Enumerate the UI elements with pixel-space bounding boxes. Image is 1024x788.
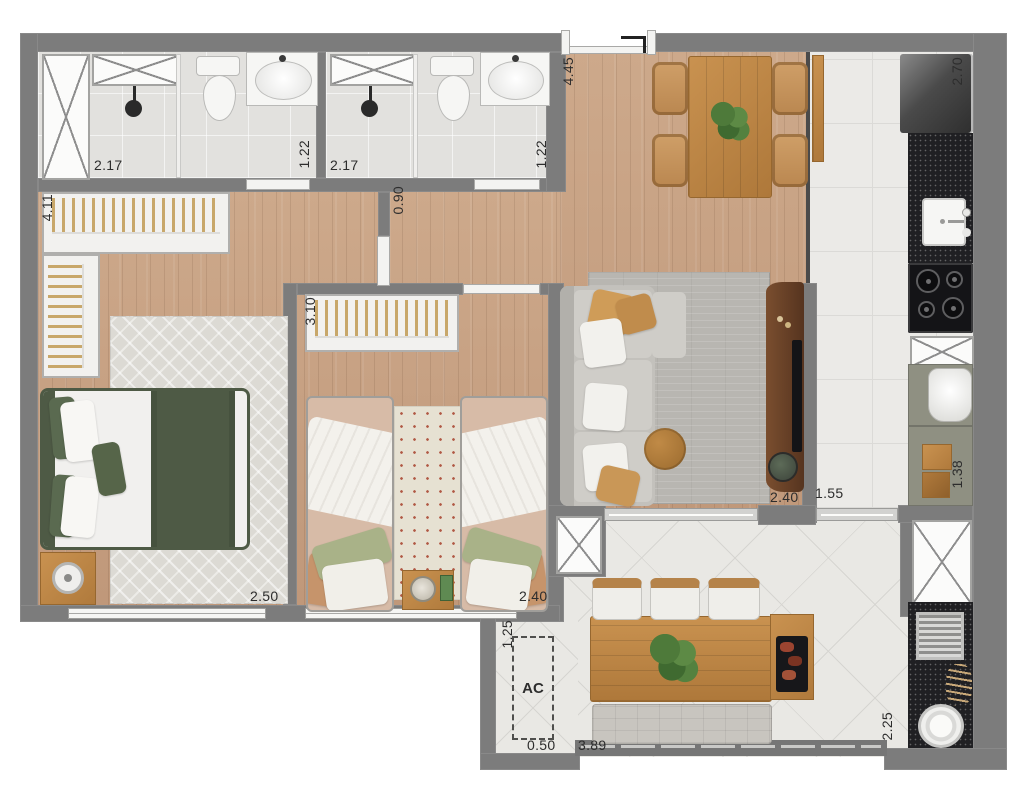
bathroom1-door-leaf [246,179,310,190]
pillow [321,558,389,612]
planter-icon [768,452,798,482]
pillow [60,475,100,538]
wall-ac-bottom [480,753,580,770]
toilet-tank-icon [430,56,474,76]
living-sliding-door [604,508,758,521]
bed-throw [151,388,235,550]
single-bed-left [306,396,394,612]
balcony-chair [650,578,700,620]
dining-chair [772,62,808,115]
wall-balcony-top-mid [758,505,816,525]
dim-kitchen-door: 1.55 [815,486,843,500]
dim-kitchen-cabinet: 1.38 [950,460,964,488]
closet-shaft-icon [42,54,90,180]
dim-bath2-depth: 1.22 [534,140,548,168]
bathroom2-door-leaf [474,179,540,190]
lamp-center-dot [64,574,72,582]
faucet-icon [948,220,964,223]
sink-basin-icon [488,61,544,100]
grill-grate-icon [916,612,964,660]
meat-icon [780,642,794,652]
sofa [560,286,686,508]
storage-box [922,472,950,498]
sofa-back [560,286,574,506]
entry-door-jamb-right [647,30,656,55]
dim-ac-width: 0.50 [527,738,555,752]
floor-plan: AC 4.11 2.17 1.22 2.17 1.22 0.90 4.45 2.… [0,0,1024,788]
dim-master-closet: 4.11 [40,194,54,221]
single-bed-right [460,396,548,612]
burner-icon [918,301,935,318]
wall-top-right [654,33,1007,52]
bowl-icon [410,576,436,602]
shower-head-icon [125,100,142,117]
hanging-herbs-icon [946,664,972,706]
dining-chair [772,134,808,187]
dim-balcony-depth: 2.25 [880,712,894,740]
dim-balcony-width: 3.89 [578,738,606,752]
dim-hall-width: 0.90 [391,186,405,214]
pillow [579,317,627,368]
round-burner-icon [918,704,964,748]
storage-box [922,444,952,470]
master-wardrobe-side [42,254,100,378]
bathroom1-window-icon [92,54,180,86]
faucet-icon [279,55,286,62]
burner-icon [916,269,940,293]
bedroom2-wardrobe [305,294,459,352]
sideboard [812,55,824,162]
sofa-chaise [652,292,686,358]
shower-head-icon [361,100,378,117]
candles-icon [777,316,783,322]
service-shaft-icon [912,520,972,604]
wall-hall [378,192,390,236]
bathroom1-partition [176,54,181,178]
dim-bath2-width: 2.17 [330,158,358,172]
bathroom2-window-icon [330,54,418,86]
dining-chair [652,134,688,187]
entry-door-handle-icon [621,36,646,53]
folded-blanket [306,416,394,529]
balcony-bench [592,704,772,744]
ac-unit-area: AC [512,636,554,740]
wall-ac-left [480,605,496,770]
dim-ac-depth: 1.25 [500,620,514,648]
dim-bed2-width: 2.40 [519,589,547,603]
book-icon [440,575,453,601]
wall-left [20,33,38,622]
laundry-basin-icon [928,368,972,422]
toilet-tank-icon [196,56,240,76]
dim-bath1-width: 2.17 [94,158,122,172]
sink-basin-icon [255,61,312,100]
kitchen-sliding-door [816,508,898,521]
plant-icon [650,634,700,684]
balcony-chair [708,578,760,620]
hangers-icon [48,264,84,368]
bedroom2-door-leaf [463,284,540,294]
dim-master-width: 2.50 [250,589,278,603]
dim-bed2-closet: 3.10 [303,297,317,325]
coffee-table-icon [644,428,686,470]
balcony-shaft-icon [556,516,602,574]
bathroom2-partition [413,54,418,178]
wall-top-left [20,33,566,52]
master-bed [40,388,250,550]
faucet-icon [512,55,519,62]
folded-blanket [460,416,548,529]
dim-bath1-depth: 1.22 [297,140,311,168]
sink-drain-dot [940,219,945,224]
ac-label: AC [522,680,544,697]
hangers-icon [52,198,220,234]
tv-icon [792,340,802,452]
master-wardrobe-top [42,192,230,254]
dining-chair [652,62,688,115]
balcony-chair [592,578,642,620]
faucet-handle-dot [962,208,971,217]
wall-right [973,33,1007,770]
dim-living-door: 2.40 [770,490,798,504]
burner-icon [942,297,964,319]
hall-door-leaf [377,236,390,286]
burner-icon [946,271,963,288]
plant-icon [711,102,751,142]
wall-balcony-bottom-right [884,748,1007,770]
hangers-icon [315,300,449,338]
dim-social-length: 4.45 [561,57,575,85]
pillow [582,382,628,431]
dim-kitchen-length: 2.70 [950,57,964,85]
master-bedroom-window [68,608,266,619]
